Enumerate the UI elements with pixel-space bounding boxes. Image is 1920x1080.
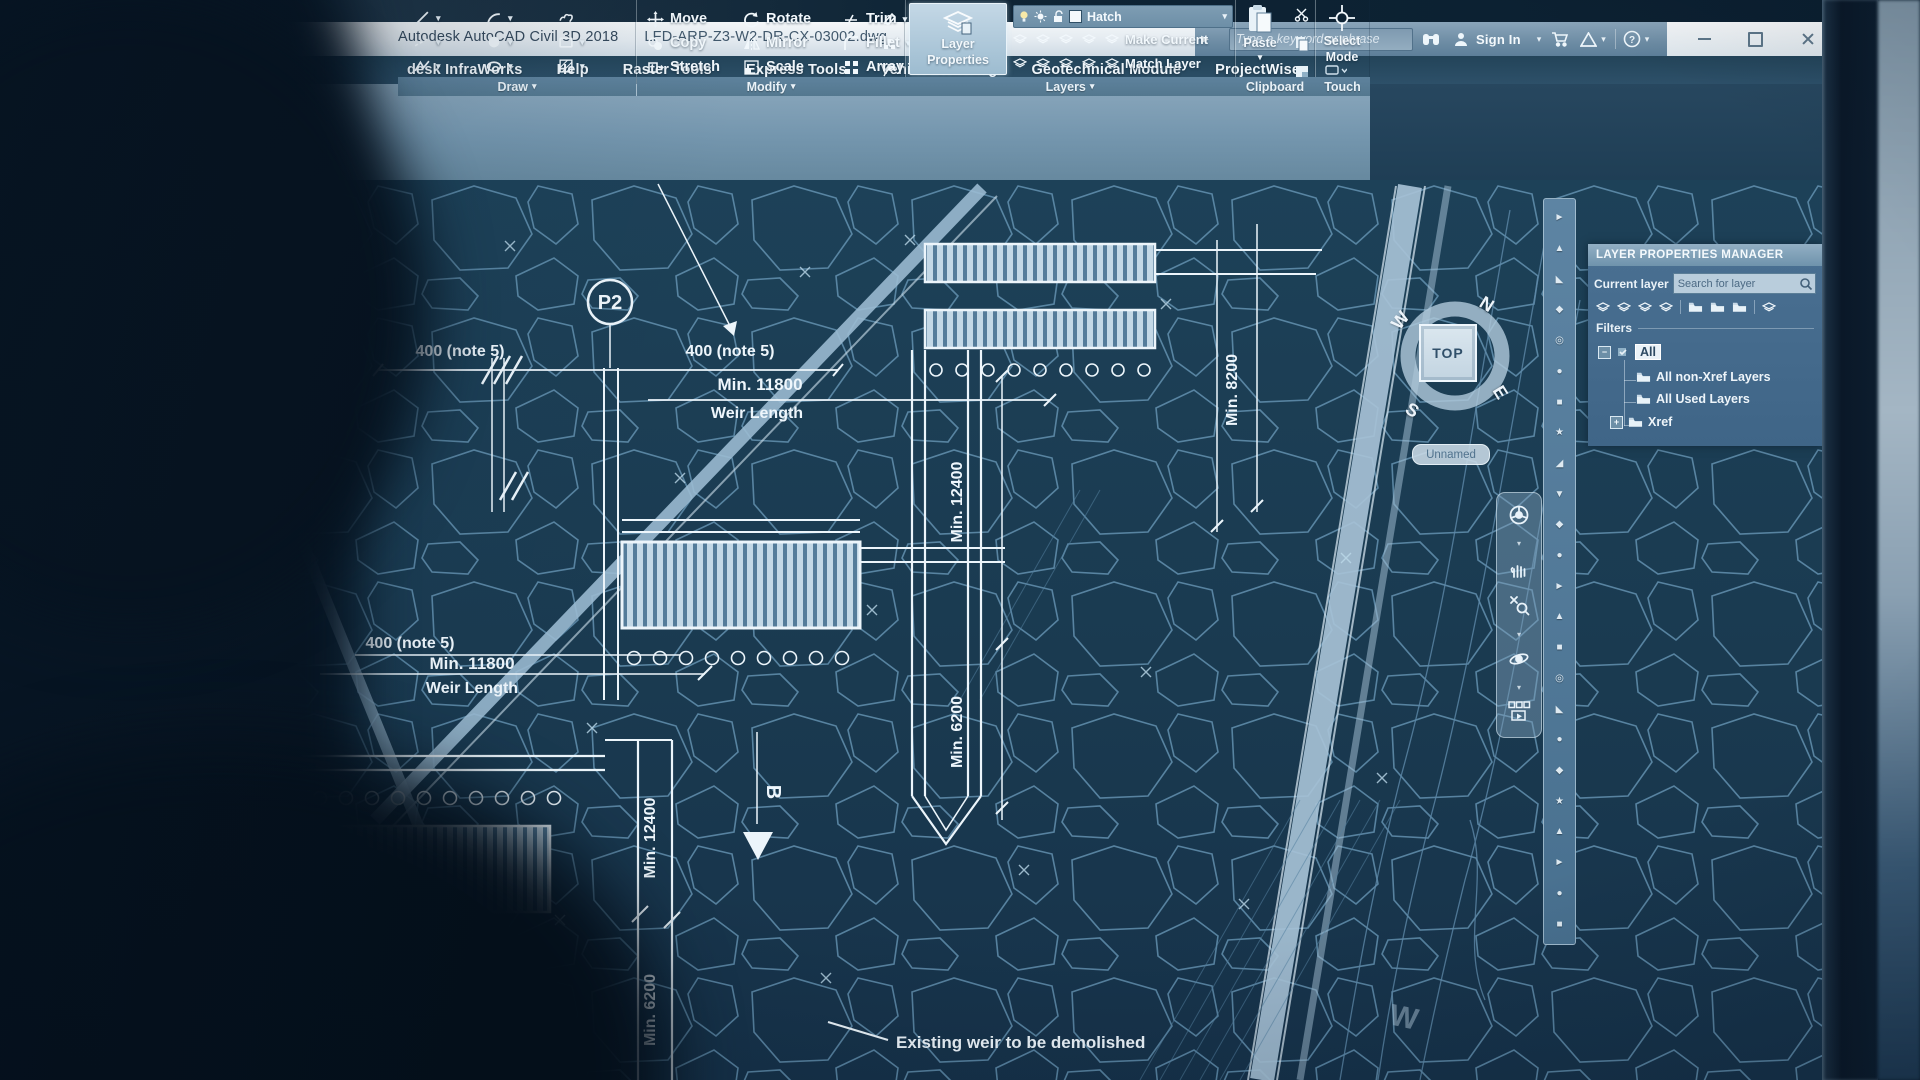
- construction-line-tool-icon[interactable]: ▾: [414, 34, 486, 50]
- cad-tool-icon[interactable]: ►: [1555, 213, 1565, 223]
- paste-button[interactable]: Paste ▾: [1238, 4, 1282, 63]
- close-icon[interactable]: [1801, 32, 1815, 46]
- hatch-tool-icon[interactable]: ▾: [558, 58, 630, 74]
- collapse-icon[interactable]: −: [1598, 346, 1611, 359]
- layer-off-icon[interactable]: [1013, 34, 1027, 45]
- make-current-button[interactable]: Make Current: [1105, 32, 1208, 47]
- xref-folder-icon: [1628, 416, 1643, 428]
- steering-wheel-icon[interactable]: [1507, 503, 1531, 532]
- move-button[interactable]: Move: [647, 11, 743, 28]
- arc-tool-icon[interactable]: ▾: [486, 10, 558, 26]
- cad-tool-icon[interactable]: ▼: [1555, 490, 1565, 500]
- draw-panel-label[interactable]: Draw▾: [398, 77, 636, 96]
- search-icon[interactable]: [1799, 277, 1815, 291]
- cad-tool-icon[interactable]: ▲: [1555, 827, 1565, 837]
- line-tool-icon[interactable]: ▾: [414, 10, 486, 26]
- modify-panel-label[interactable]: Modify▾: [637, 77, 905, 96]
- cad-tool-icon[interactable]: ►: [1555, 582, 1565, 592]
- new-group-filter-icon[interactable]: [1710, 301, 1725, 313]
- layer-lock-icon[interactable]: [1082, 34, 1096, 45]
- viewcube[interactable]: TOP N E S W Unnamed: [1398, 292, 1518, 472]
- layer-isolate-icon[interactable]: [1036, 34, 1050, 45]
- annotation: 400 (note 5): [416, 343, 505, 360]
- match-layer-button[interactable]: Match Layer: [1105, 56, 1201, 71]
- stretch-button[interactable]: Stretch: [647, 59, 743, 76]
- refresh-icon[interactable]: [1762, 302, 1776, 313]
- filters-label: Filters: [1596, 321, 1632, 335]
- cad-tool-icon[interactable]: ◣: [1556, 275, 1564, 285]
- cad-tool-icon[interactable]: ◣: [1556, 705, 1564, 715]
- cad-tool-icon[interactable]: ■: [1556, 920, 1562, 930]
- mirror-button[interactable]: Mirror: [743, 35, 843, 52]
- help-dropdown-icon[interactable]: ▾: [1645, 34, 1650, 45]
- cad-tool-icon[interactable]: ▲: [1555, 244, 1565, 254]
- annotation: Existing weir to be demolished: [896, 1033, 1145, 1052]
- zoom-icon[interactable]: [1507, 593, 1531, 622]
- ribbon-empty-area: [1370, 84, 1822, 180]
- annotation: Min. 12400: [642, 797, 659, 878]
- tree-node-non-xref[interactable]: All non-Xref Layers: [1636, 370, 1771, 384]
- fillet-button[interactable]: Fillet▾: [843, 35, 883, 52]
- photo-of-monitor: Autodesk AutoCAD Civil 3D 2018LFD-ARP-Z3…: [0, 0, 1920, 1080]
- cad-tool-icon[interactable]: ●: [1556, 551, 1562, 561]
- photographer-silhouette: [0, 0, 230, 1080]
- copy-button[interactable]: Copy: [647, 35, 743, 52]
- annotation: Weir Length: [711, 405, 803, 422]
- cad-tool-icon[interactable]: ●: [1556, 735, 1562, 745]
- cut-scissors-icon[interactable]: [1294, 8, 1309, 27]
- cad-tool-icon[interactable]: ◎: [1555, 674, 1564, 684]
- sign-in-button[interactable]: Sign In: [1476, 32, 1521, 47]
- folder-icon: [1636, 393, 1651, 405]
- layer-freeze-icon[interactable]: [1059, 34, 1073, 45]
- layer-select-combo[interactable]: Hatch ▾: [1013, 5, 1233, 28]
- cad-tool-icon[interactable]: ●: [1556, 367, 1562, 377]
- layers-panel-label[interactable]: Layers▾: [905, 77, 1235, 96]
- annotation: Min. 11800: [429, 654, 514, 673]
- annotation: Min. 6200: [949, 696, 966, 768]
- explode-tool-icon[interactable]: [882, 37, 897, 57]
- layer-walk-icon[interactable]: [1082, 58, 1096, 69]
- layer-thaw-icon[interactable]: [1036, 58, 1050, 69]
- panel-dropdown-icon: ▾: [532, 81, 537, 92]
- erase-tool-icon[interactable]: [882, 10, 897, 30]
- layer-on-bulb-icon: [1019, 10, 1029, 23]
- annotation: Min. 6200: [642, 974, 659, 1046]
- tree-node-used[interactable]: All Used Layers: [1636, 392, 1750, 406]
- zoom-dropdown-icon[interactable]: ▾: [1517, 631, 1521, 639]
- layer-properties-button[interactable]: Layer Properties: [909, 3, 1007, 75]
- expand-icon[interactable]: +: [1610, 416, 1623, 429]
- restore-icon[interactable]: [1748, 32, 1763, 47]
- annotation: Weir Length: [426, 680, 518, 697]
- new-frozen-layer-icon[interactable]: [1617, 302, 1631, 313]
- minimize-icon[interactable]: [1698, 38, 1711, 40]
- layer-color-swatch[interactable]: [1069, 10, 1082, 23]
- select-mode-button[interactable]: Select Mode: [1317, 4, 1367, 64]
- layer-states-icon[interactable]: [1732, 301, 1747, 313]
- svg-text:?: ?: [1629, 35, 1635, 46]
- annotation: Min. 8200: [1224, 354, 1241, 426]
- vertical-tool-strip: ►▲◣◆◎●■★◢▼◆●►▲■◎◣●◆★▲►●■: [1543, 198, 1576, 945]
- panel-dropdown-icon: ▾: [1090, 81, 1095, 92]
- panel-dropdown-icon: ▾: [791, 81, 796, 92]
- autodesk-app-icon[interactable]: [1578, 27, 1598, 51]
- copy-clip-icon[interactable]: [1295, 36, 1309, 56]
- layer-unisolate-icon[interactable]: [1013, 58, 1027, 69]
- cad-tool-icon[interactable]: ►: [1555, 858, 1565, 868]
- search-binoculars-icon[interactable]: [1421, 27, 1441, 51]
- new-property-filter-icon[interactable]: [1688, 301, 1703, 313]
- rotate-button[interactable]: Rotate: [743, 11, 843, 28]
- tree-node-all[interactable]: − All: [1598, 344, 1661, 360]
- layer-search-input[interactable]: [1674, 278, 1799, 290]
- modify-panel: Move Rotate Trim▾ Copy Mirror Fillet▾ St…: [637, 0, 906, 96]
- app-store-cart-icon[interactable]: [1550, 27, 1570, 51]
- annotation: 400 (note 5): [366, 635, 455, 652]
- ellipse-tool-icon[interactable]: ▾: [486, 58, 558, 74]
- touch-panel: Select Mode Touch: [1315, 0, 1370, 96]
- touch-panel-label[interactable]: Touch: [1315, 77, 1370, 96]
- layer-freeze-sun-icon: [1034, 10, 1047, 23]
- pan-hand-icon[interactable]: [1507, 556, 1531, 585]
- orbit-icon[interactable]: [1507, 647, 1531, 676]
- all-filter-icon: [1616, 346, 1630, 358]
- annotation: B: [762, 785, 784, 799]
- clipboard-panel: Paste ▾ Clipboard: [1235, 0, 1316, 96]
- trim-button[interactable]: Trim▾: [843, 11, 883, 28]
- orbit-dropdown-icon[interactable]: ▾: [1517, 684, 1521, 692]
- set-current-layer-icon[interactable]: [1659, 302, 1673, 313]
- app-dropdown-icon[interactable]: ▾: [1601, 34, 1606, 45]
- showmotion-icon[interactable]: [1507, 700, 1531, 727]
- window-controls: [1667, 22, 1846, 56]
- annotation: P2: [598, 292, 622, 314]
- cad-tool-icon[interactable]: ◆: [1556, 305, 1564, 315]
- current-layer-label: Current layer: [1594, 277, 1669, 291]
- layer-tools-row-1: Make Current: [1013, 32, 1208, 47]
- annotation: 400 (note 5): [686, 343, 775, 360]
- layer-search-box[interactable]: [1673, 273, 1816, 294]
- cad-tool-icon[interactable]: ▲: [1555, 612, 1565, 622]
- cad-tool-icon[interactable]: ◎: [1555, 336, 1564, 346]
- polyline-tool-icon[interactable]: ▾: [414, 58, 486, 74]
- current-layer-name: Hatch: [1087, 10, 1122, 24]
- navigation-bar: ▾ ▾ ▾: [1496, 492, 1542, 738]
- cad-tool-icon[interactable]: ◆: [1556, 520, 1564, 530]
- paste-dropdown-icon[interactable]: ▾: [1258, 53, 1263, 62]
- title-bar-divider: [1615, 29, 1616, 49]
- revision-cloud-tool-icon[interactable]: [558, 10, 630, 26]
- layer-tools-row-2: Match Layer: [1013, 56, 1201, 71]
- new-layer-icon[interactable]: [1596, 302, 1610, 313]
- layers-panel: Layer Properties Hatch ▾ Make Current Ma…: [905, 0, 1236, 96]
- ribbon-body: [260, 84, 1370, 180]
- background-blur: [1878, 0, 1920, 1080]
- circle-tool-icon[interactable]: ▾: [486, 34, 558, 50]
- folder-icon: [1636, 371, 1651, 383]
- lpm-toolbar: [1596, 300, 1814, 314]
- monitor-bezel: [1822, 0, 1878, 1080]
- cad-tool-icon[interactable]: ★: [1555, 797, 1564, 807]
- layer-unlock-all-icon[interactable]: [1059, 58, 1073, 69]
- layer-unlock-icon: [1052, 10, 1064, 23]
- cad-tool-icon[interactable]: ●: [1556, 889, 1562, 899]
- tree-node-xref[interactable]: + Xref: [1610, 415, 1672, 429]
- wheel-dropdown-icon[interactable]: ▾: [1517, 540, 1521, 548]
- viewcube-top-face[interactable]: TOP: [1419, 324, 1477, 382]
- annotation: Min. 11800: [717, 375, 802, 394]
- sign-in-dropdown-icon[interactable]: ▾: [1537, 34, 1542, 45]
- delete-layer-icon[interactable]: [1638, 302, 1652, 313]
- cad-tool-icon[interactable]: ■: [1556, 643, 1562, 653]
- annotation: Min. 12400: [949, 461, 966, 542]
- help-icon[interactable]: ?: [1622, 27, 1642, 51]
- cad-tool-icon[interactable]: ■: [1556, 398, 1562, 408]
- view-name-pill[interactable]: Unnamed: [1412, 444, 1490, 465]
- user-icon[interactable]: [1451, 27, 1471, 51]
- cad-tool-icon[interactable]: ★: [1555, 428, 1564, 438]
- layer-combo-dropdown-icon[interactable]: ▾: [1222, 11, 1227, 22]
- cad-tool-icon[interactable]: ◆: [1556, 766, 1564, 776]
- lpm-title-bar[interactable]: LAYER PROPERTIES MANAGER: [1588, 244, 1822, 266]
- layer-properties-manager: LAYER PROPERTIES MANAGER Current layer F…: [1588, 244, 1822, 446]
- cad-tool-icon[interactable]: ◢: [1556, 459, 1564, 469]
- scale-button[interactable]: Scale: [743, 59, 843, 76]
- rectangle-tool-icon[interactable]: ▾: [558, 34, 630, 50]
- draw-panel: ▾ ▾ ▾ ▾ ▾ ▾ ▾ ▾ Draw▾: [398, 0, 637, 96]
- array-button[interactable]: Array▾: [843, 59, 883, 76]
- clipboard-panel-label[interactable]: Clipboard: [1235, 77, 1315, 96]
